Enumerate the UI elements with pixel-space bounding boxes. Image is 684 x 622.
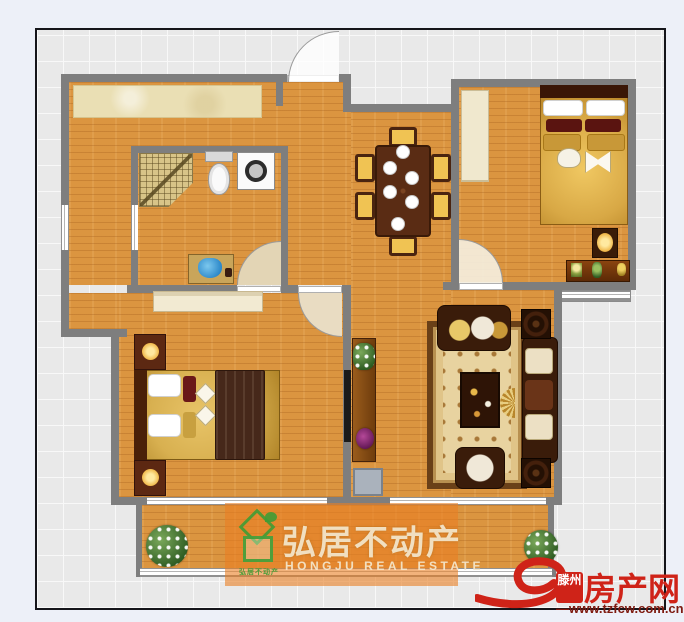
table-lamp-icon xyxy=(597,233,613,252)
plate-icon xyxy=(405,171,419,185)
bay-window xyxy=(561,290,631,302)
plate-icon xyxy=(391,217,405,231)
toilet-tank xyxy=(205,151,233,162)
armchair xyxy=(437,305,511,351)
master-door-leaf xyxy=(298,286,342,293)
dining-chair xyxy=(431,154,451,182)
coffee-table xyxy=(460,372,500,428)
plate-icon xyxy=(405,195,419,209)
toilet xyxy=(208,163,230,195)
brand-logo-house-icon xyxy=(235,512,281,566)
pillow xyxy=(587,134,625,151)
purple-flower-icon xyxy=(356,428,374,449)
brand-name-en: HONGJU REAL ESTATE xyxy=(285,559,484,573)
wall xyxy=(451,79,459,290)
shoe-cabinet xyxy=(353,468,383,496)
bed-headboard xyxy=(540,85,628,98)
wall xyxy=(111,329,119,505)
flower-arrangement-icon xyxy=(353,343,375,370)
end-table xyxy=(521,458,551,488)
pillow xyxy=(586,100,625,116)
sofa-cushion xyxy=(525,348,553,374)
wall xyxy=(61,74,287,82)
pillow xyxy=(585,119,621,132)
washing-machine-drum-icon xyxy=(245,160,267,182)
blanket xyxy=(215,370,265,460)
potted-plant-icon xyxy=(146,525,188,567)
site-logo-seal: 滕州 xyxy=(556,572,583,603)
dresser xyxy=(153,291,263,312)
logo-leaf-shape xyxy=(265,512,277,522)
balcony-wall xyxy=(136,501,142,576)
tv-icon xyxy=(344,370,351,442)
kitchen-counter xyxy=(73,85,262,118)
wall xyxy=(343,104,459,112)
plate-icon xyxy=(383,185,397,199)
pillow xyxy=(183,376,196,402)
bed-headboard xyxy=(134,370,147,460)
window xyxy=(61,205,69,250)
dining-chair xyxy=(431,192,451,220)
small-plant-icon xyxy=(592,262,602,278)
wall-stub xyxy=(276,82,283,106)
pillow xyxy=(546,119,582,132)
faucet-icon xyxy=(225,268,232,277)
pillow xyxy=(183,412,196,438)
wardrobe xyxy=(461,90,489,182)
dining-chair xyxy=(355,154,375,182)
small-plant-icon xyxy=(571,263,582,277)
bathroom-window xyxy=(131,205,138,250)
cushion xyxy=(557,148,581,168)
wall xyxy=(443,282,459,290)
dining-chair xyxy=(355,192,375,220)
bathroom-wall xyxy=(281,146,288,292)
sofa-cushion xyxy=(525,414,553,440)
brand-logo-subtext: 弘居不动产 xyxy=(231,567,287,577)
sofa-cushion xyxy=(525,380,553,410)
table-lamp-icon xyxy=(142,343,159,360)
end-table xyxy=(521,309,551,339)
dining-chair xyxy=(389,127,417,147)
plate-icon xyxy=(396,145,410,159)
wall xyxy=(628,79,636,290)
pillow xyxy=(148,414,181,437)
logo-body-shape xyxy=(243,536,273,562)
small-plant-icon xyxy=(617,263,626,276)
bedroom-door-leaf xyxy=(459,283,503,290)
brand-name: 弘居不动产 xyxy=(282,515,462,564)
pillow xyxy=(543,100,583,116)
vanity-sink-icon xyxy=(198,258,222,278)
wall xyxy=(503,282,636,290)
armchair xyxy=(455,447,505,489)
floor-plan-screenshot: 弘居不动产 弘居不动产 HONGJU REAL ESTATE 滕州 房产网 —w… xyxy=(0,0,684,622)
pillow xyxy=(148,374,181,397)
plate-icon xyxy=(383,161,397,175)
table-lamp-icon xyxy=(142,469,159,486)
dining-chair xyxy=(389,236,417,256)
site-logo-url: —www.tzfcw.com.cn xyxy=(556,601,684,616)
